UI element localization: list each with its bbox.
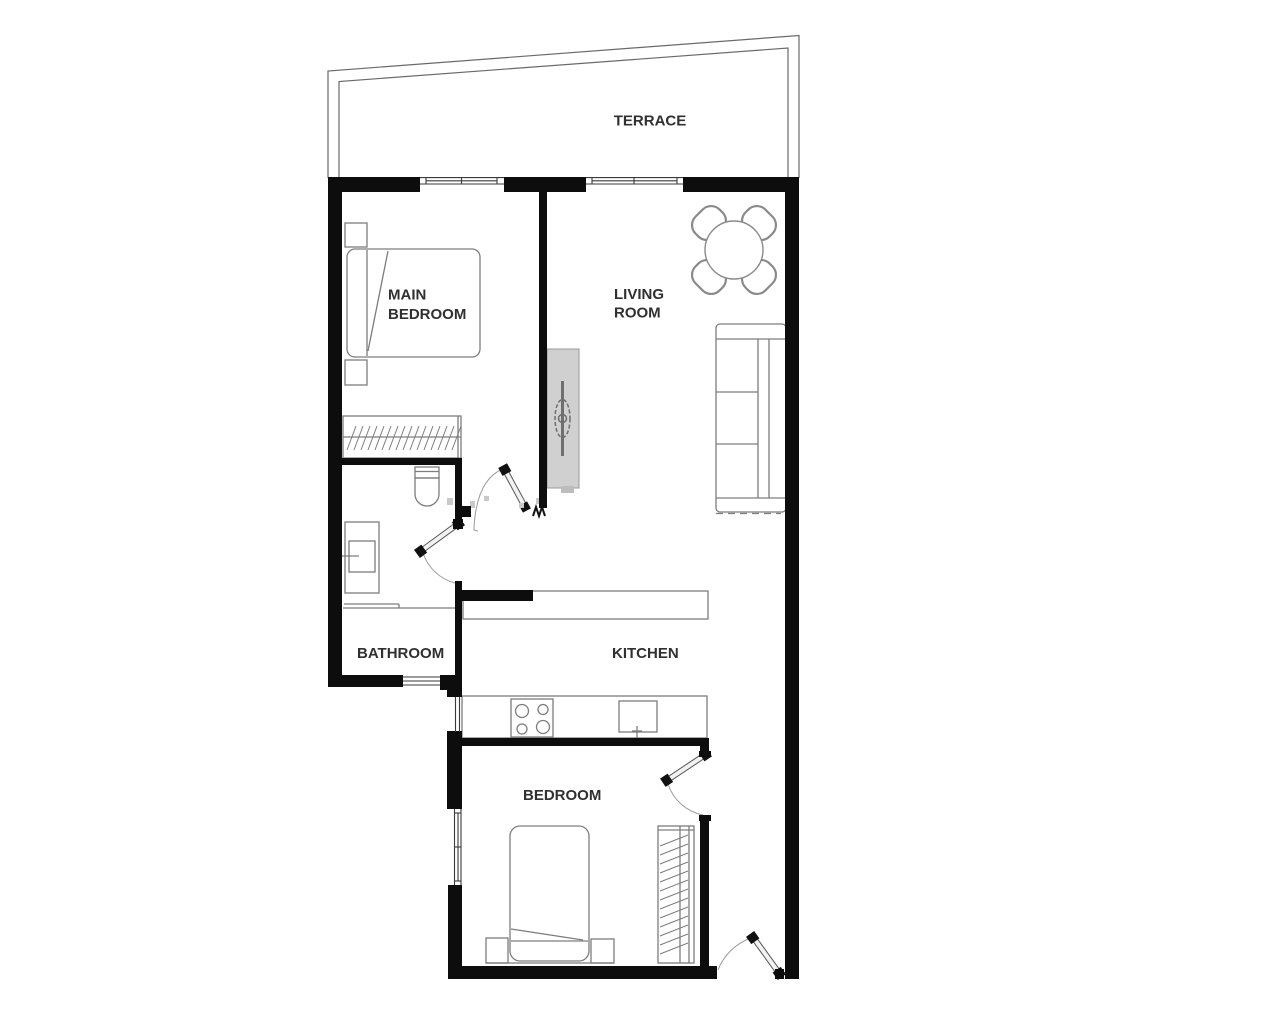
- svg-text:LIVING: LIVING: [614, 286, 664, 303]
- svg-text:BEDROOM: BEDROOM: [388, 306, 466, 323]
- svg-text:BEDROOM: BEDROOM: [523, 787, 601, 804]
- svg-text:BATHROOM: BATHROOM: [357, 645, 444, 662]
- svg-text:TERRACE: TERRACE: [614, 113, 687, 130]
- svg-text:MAIN: MAIN: [388, 287, 426, 304]
- svg-text:ROOM: ROOM: [614, 305, 661, 322]
- svg-text:KITCHEN: KITCHEN: [612, 645, 679, 662]
